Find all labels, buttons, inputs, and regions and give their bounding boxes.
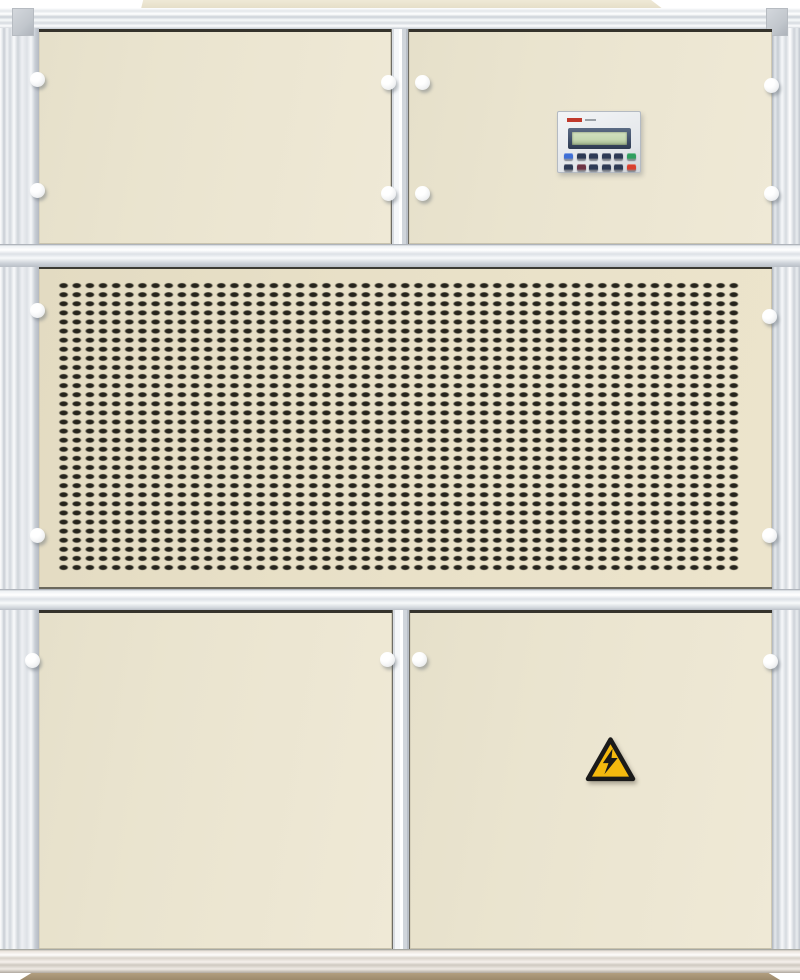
latch-knob [762, 309, 777, 324]
keypad-row-1 [564, 153, 636, 160]
lower-horizontal-rail [0, 589, 800, 610]
high-voltage-warning-icon [585, 736, 636, 783]
keypad-button [589, 153, 598, 160]
bottom-left-door [39, 610, 392, 949]
keypad-button [602, 153, 611, 160]
upper-horizontal-rail [0, 244, 800, 267]
base-plinth [20, 973, 780, 980]
keypad-button [627, 153, 636, 160]
keypad-button [564, 164, 573, 171]
latch-knob [412, 652, 427, 667]
keypad-button [589, 164, 598, 171]
keypad-button [577, 164, 586, 171]
latch-knob [762, 528, 777, 543]
keypad-button [627, 164, 636, 171]
latch-knob [381, 186, 396, 201]
grille-panel [39, 267, 772, 589]
lcd-bezel [568, 128, 631, 149]
controller-panel [557, 111, 641, 173]
keypad-button [614, 164, 623, 171]
keypad-row-2 [564, 164, 636, 171]
latch-knob [30, 183, 45, 198]
unit-photo [0, 0, 800, 980]
latch-knob [25, 653, 40, 668]
bottom-frame-rail [0, 949, 800, 973]
latch-knob [30, 528, 45, 543]
keypad-button [602, 164, 611, 171]
latch-knob [415, 186, 430, 201]
top-frame-rail [0, 8, 800, 29]
latch-knob [380, 652, 395, 667]
lcd-screen [572, 132, 627, 145]
latch-knob [30, 303, 45, 318]
top-left-panel [39, 29, 391, 244]
keypad-button [614, 153, 623, 160]
keypad-button [577, 153, 586, 160]
latch-knob [30, 72, 45, 87]
latch-knob [763, 654, 778, 669]
latch-knob [764, 78, 779, 93]
top-panel-divider [391, 29, 409, 244]
controller-brand-logo [567, 118, 582, 122]
left-frame-rail [0, 28, 39, 950]
ventilation-grille [57, 281, 741, 572]
latch-knob [764, 186, 779, 201]
latch-knob [415, 75, 430, 90]
controller-brand-text [585, 119, 596, 121]
keypad-button [564, 153, 573, 160]
left-corner-cap [12, 8, 34, 36]
right-frame-rail [772, 28, 800, 950]
latch-knob [381, 75, 396, 90]
